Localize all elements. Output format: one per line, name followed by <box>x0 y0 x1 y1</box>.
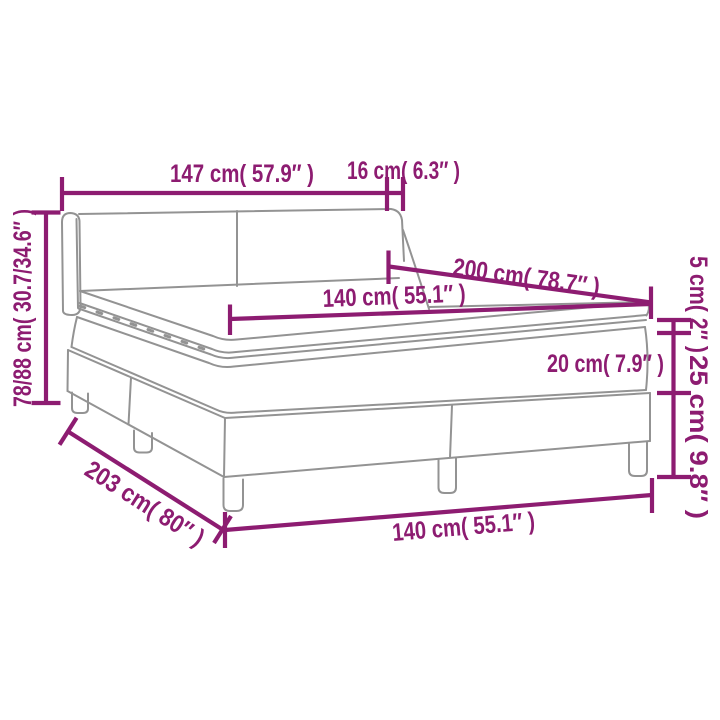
base-front-seam <box>450 406 452 458</box>
base-front-bottom-edge <box>224 441 650 477</box>
base-side-seam <box>129 378 132 425</box>
base-corner-edge <box>224 418 225 477</box>
leg <box>224 479 244 512</box>
leg <box>439 458 457 493</box>
dim-label-headboard-side-depth: 16 cm( 6.3″ ) <box>347 157 460 185</box>
leg <box>134 431 152 453</box>
headboard-panel <box>79 209 404 261</box>
headboard-left-wing-inner-edge <box>77 219 79 308</box>
dim-label-base-leg-height: 25 cm( 9.8″ ) <box>684 355 712 519</box>
base-left-end-edge <box>68 350 69 391</box>
dim-label-bed-length: 203 cm( 80″ ) <box>80 455 210 552</box>
mattress-body-left-cap <box>72 317 78 347</box>
dim-label-headboard-height: 78/88 cm( 30.7/34.6″ ) <box>9 209 37 407</box>
dim-label-mattress-length: 200 cm( 78.7″ ) <box>451 253 601 301</box>
diagram-canvas: 147 cm( 57.9″ ) 16 cm( 6.3″ ) 78/88 cm( … <box>0 0 720 720</box>
leg <box>629 443 647 477</box>
dim-label-topper-height: 5 cm( 2″ ) <box>684 256 712 353</box>
dim-label-headboard-width: 147 cm( 57.9″ ) <box>170 160 314 188</box>
bed-dimensions-diagram: 147 cm( 57.9″ ) 16 cm( 6.3″ ) 78/88 cm( … <box>0 0 720 720</box>
dim-label-mattress-height: 20 cm( 7.9″ ) <box>547 350 664 378</box>
dim-label-mattress-width: 140 cm( 55.1″ ) <box>322 280 466 313</box>
